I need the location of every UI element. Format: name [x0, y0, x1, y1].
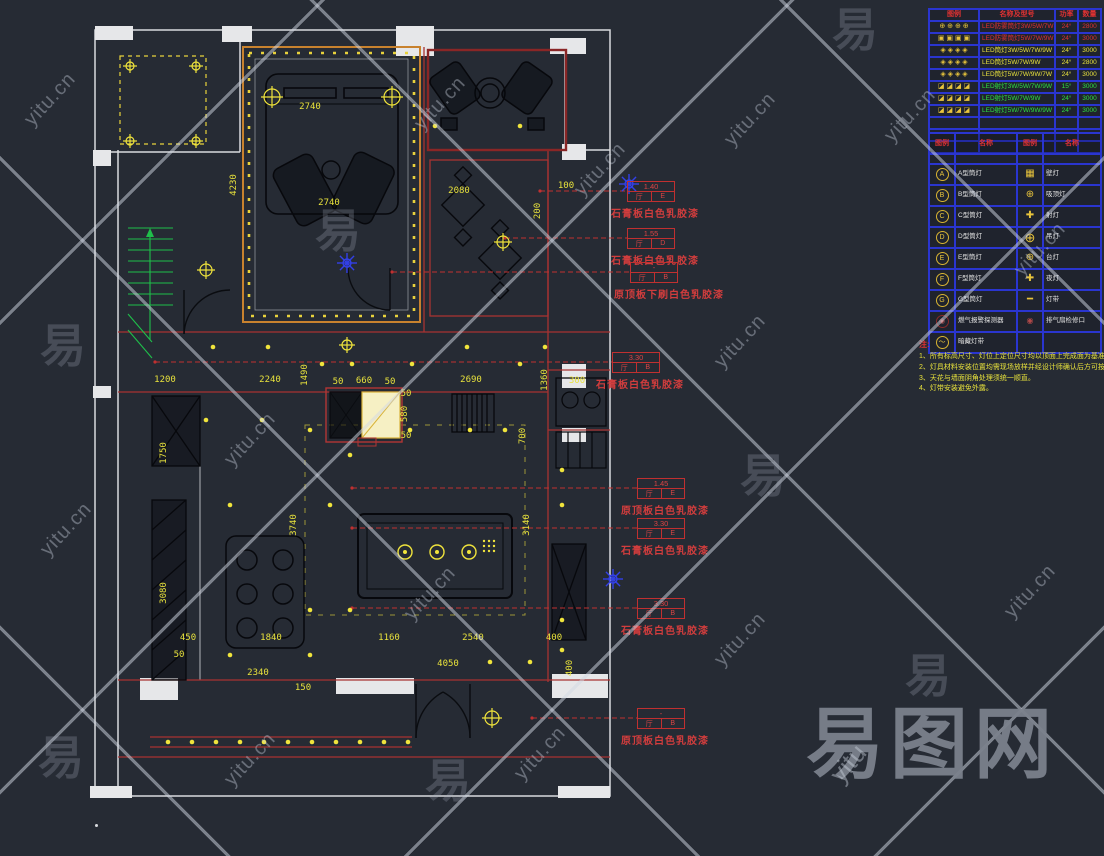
callout-finish-label: 石膏板白色乳胶漆 — [621, 622, 709, 637]
legend-row: ◈ ◈ ◈ ◈LED筒灯3W/5W/7W/9W24°3000 — [929, 45, 1101, 57]
symbol-name: C型筒灯 — [955, 206, 1017, 227]
legend-row: 图例名称图例名称 — [929, 133, 1101, 154]
legend-cell — [1055, 117, 1078, 129]
dot-light-icon — [488, 540, 490, 542]
dot-light-icon — [483, 540, 485, 542]
downlight-icon — [320, 362, 325, 367]
dot-light-icon — [488, 550, 490, 552]
ceiling-lamp-icon — [339, 337, 355, 353]
fixture-name: LED筒灯5W/7W/9W/7W — [979, 69, 1055, 81]
dim-label: 4230 — [229, 174, 239, 196]
downlight-icon — [350, 362, 355, 367]
dim-label: 50 — [333, 377, 344, 387]
downlight-icon — [358, 740, 363, 745]
cad-canvas: 2740423027402080100200120022401490506605… — [0, 0, 1104, 856]
lamp-symbols-icon: ◪ ◪ ◪ ◪ — [929, 105, 979, 117]
callout-tag: 1.45 厅 E — [637, 478, 685, 499]
wardrobe — [552, 544, 586, 640]
dim-label: 700 — [518, 428, 528, 444]
dim-label: 50 — [401, 389, 412, 399]
ceiling-lamp-icon — [123, 134, 137, 148]
dining-set — [226, 536, 304, 648]
legend-header: 图例 — [929, 133, 955, 154]
legend-row: G G型筒灯 ━ 灯带 — [929, 290, 1101, 311]
symbol-name: 燃气报警探测器 — [955, 311, 1017, 332]
downlight-icon — [560, 648, 565, 653]
legend-row: D D型筒灯 ⊕ 吊灯 — [929, 227, 1101, 248]
dim-label: 3080 — [159, 582, 169, 604]
downlight-icon — [543, 345, 548, 350]
callout-code: B — [662, 719, 685, 728]
dim-label: 1160 — [378, 633, 400, 643]
legend-cell — [1078, 117, 1101, 129]
callout-code: B — [662, 609, 685, 618]
downlight-icon — [266, 345, 271, 350]
fixture-name: LED射灯3W/5W/7W/9W — [979, 81, 1055, 93]
callout-height: 3.30 — [638, 519, 684, 529]
lamp-symbol-icon: ▦ — [1025, 169, 1034, 180]
stray-dot — [95, 824, 98, 827]
downlight-icon — [214, 740, 219, 745]
note-item: 3、天花与墙面阴角处理须统一顺直。 — [919, 374, 1104, 385]
lamp-symbols-icon: ◈ ◈ ◈ ◈ — [929, 45, 979, 57]
legend-row — [929, 154, 1101, 164]
symbol-legend-table: 图例名称图例名称 A A型筒灯 ▦ 壁灯 B B型筒灯 ⊕ 吸顶灯 C C型筒灯… — [928, 132, 1102, 354]
callout-height: 3.30 — [638, 599, 684, 609]
fixture-qty: 3000 — [1078, 93, 1101, 105]
lamp-symbol-icon: ✚ — [1026, 211, 1034, 222]
callout-finish-label: 原顶板白色乳胶漆 — [621, 502, 709, 517]
ceiling-lamp-icon — [381, 86, 403, 108]
downlight-type-icon: G — [936, 294, 949, 307]
finish-callout: 3.30 厅 B 石膏板白色乳胶漆 — [637, 598, 709, 637]
radiator-unit — [452, 394, 494, 432]
legend-header: 名称及型号 — [979, 9, 1055, 21]
fixture-qty: 3000 — [1078, 69, 1101, 81]
symbol-name: F型筒灯 — [955, 269, 1017, 290]
downlight-type-icon: B — [936, 189, 949, 202]
watermark-glyph: 易 — [832, 0, 878, 60]
fixture-name: LED射灯5W/7W/9W — [979, 93, 1055, 105]
dim-label: 2240 — [259, 375, 281, 385]
legend-cell — [979, 117, 1055, 129]
legend-row: ⊕ ⊕ ⊕ ⊕LED防雾筒灯3W/5W/7W24°2800 — [929, 21, 1101, 33]
downlight-icon — [310, 740, 315, 745]
symbol-name: 排气扇检修口 — [1043, 311, 1101, 332]
downlight-icon — [518, 124, 523, 129]
fixture-qty: 2800 — [1078, 57, 1101, 69]
downlight-icon — [348, 453, 353, 458]
downlight-icon — [410, 362, 415, 367]
downlight-type-icon: D — [936, 231, 949, 244]
dim-label: 50 — [174, 650, 185, 660]
dim-label: 50 — [385, 377, 396, 387]
callout-code: E — [652, 192, 675, 201]
downlight-type-icon: A — [936, 168, 949, 181]
fixture-qty: 3000 — [1078, 81, 1101, 93]
callout-tag: 3.30 厅 B — [637, 598, 685, 619]
downlight-icon — [190, 740, 195, 745]
downlight-icon — [308, 428, 313, 433]
downlight-icon — [166, 740, 171, 745]
dot-light-icon — [483, 545, 485, 547]
finish-callout: - 厅 B 原顶板白色乳胶漆 — [637, 708, 709, 747]
pendant-lamp-icon — [398, 545, 412, 559]
legend-row: A A型筒灯 ▦ 壁灯 — [929, 164, 1101, 185]
fixture-power: 24° — [1055, 33, 1078, 45]
callout-height: 1.55 — [628, 229, 674, 239]
dim-label: 2340 — [247, 668, 269, 678]
downlight-icon — [238, 740, 243, 745]
dim-label: 1200 — [154, 375, 176, 385]
dim-label: 1840 — [260, 633, 282, 643]
lamp-symbol-icon: ◉ — [1027, 317, 1034, 325]
callout-finish-label: 石膏板白色乳胶漆 — [611, 205, 699, 220]
lamp-symbols-icon: ◈ ◈ ◈ ◈ — [929, 69, 979, 81]
downlight-icon — [211, 345, 216, 350]
legend-row: F F型筒灯 ✚ 夜灯 — [929, 269, 1101, 290]
dim-label: 200 — [533, 203, 543, 219]
downlight-icon — [468, 428, 473, 433]
legend-row: ◈ ◈ ◈ ◈LED筒灯5W/7W/9W/7W24°3000 — [929, 69, 1101, 81]
callout-height: - — [631, 263, 677, 273]
callout-room: 厅 — [638, 719, 662, 728]
ceiling-lamp-icon — [189, 59, 203, 73]
legend-row: ◉ 燃气报警探测器 ◉ 排气扇检修口 — [929, 311, 1101, 332]
callout-room: 厅 — [613, 363, 637, 372]
downlight-icon — [503, 428, 508, 433]
symbol-name: 壁灯 — [1043, 164, 1101, 185]
dot-light-icon — [488, 545, 490, 547]
light-box — [326, 388, 402, 446]
callout-finish-label: 石膏板白色乳胶漆 — [621, 542, 709, 557]
legend-header: 图例 — [929, 9, 979, 21]
downlight-icon — [560, 618, 565, 623]
lamp-symbol-icon: ━ — [1027, 295, 1033, 306]
legend-row: ◈ ◈ ◈ ◈LED筒灯5W/7W/9W24°2800 — [929, 57, 1101, 69]
callout-code: E — [662, 489, 685, 498]
callout-room: 厅 — [631, 273, 655, 282]
legend-header: 图例 — [1017, 133, 1043, 154]
downlight-icon — [204, 418, 209, 423]
dot-light-icon — [493, 545, 495, 547]
downlight-icon — [334, 740, 339, 745]
symbol-name: 吸顶灯 — [1043, 185, 1101, 206]
dim-label: 2540 — [462, 633, 484, 643]
lamp-symbols-icon: ◪ ◪ ◪ ◪ — [929, 81, 979, 93]
symbol-name: B型筒灯 — [955, 185, 1017, 206]
ceiling-lamp-icon — [197, 261, 215, 279]
downlight-icon — [465, 345, 470, 350]
callout-tag: 3.30 厅 B — [612, 352, 660, 373]
legend-header: 功率 — [1055, 9, 1078, 21]
symbol-name: 夜灯 — [1043, 269, 1101, 290]
fixture-power: 15° — [1055, 81, 1078, 93]
legend-cell — [929, 117, 979, 129]
hall-light-band — [305, 425, 525, 615]
symbol-name: 灯带 — [1043, 290, 1101, 311]
fixture-power: 24° — [1055, 21, 1078, 33]
callout-finish-label: 原顶板白色乳胶漆 — [621, 732, 709, 747]
callout-room: 厅 — [628, 239, 652, 248]
doors — [184, 268, 470, 738]
dim-label: 1490 — [300, 364, 310, 386]
callout-tag: 1.55 厅 D — [627, 228, 675, 249]
downlight-icon — [308, 608, 313, 613]
finish-callout: - 厅 B 原顶板下刷白色乳胶漆 — [630, 262, 724, 301]
dim-label: 2690 — [460, 375, 482, 385]
downlight-icon — [348, 608, 353, 613]
notes: 注: 1、所有标高尺寸、灯位上定位尺寸均以顶面上完成面为基准。2、灯具材料安装位… — [919, 339, 1104, 395]
dim-label: 580 — [400, 406, 410, 422]
dim-label: 400 — [546, 633, 562, 643]
symbol-name: A型筒灯 — [955, 164, 1017, 185]
downlight-icon — [560, 468, 565, 473]
dim-label: 660 — [356, 376, 372, 386]
callout-finish-label: 石膏板白色乳胶漆 — [596, 376, 684, 391]
downlight-icon — [488, 660, 493, 665]
legend-row: ▣ ▣ ▣ ▣LED防雾筒灯5W/7W/9W24°3000 — [929, 33, 1101, 45]
dim-label: 1750 — [159, 442, 169, 464]
chandelier-icon — [603, 569, 623, 589]
dim-label: 2740 — [299, 102, 321, 112]
note-item: 1、所有标高尺寸、灯位上定位尺寸均以顶面上完成面为基准。 — [919, 352, 1104, 363]
callout-height: 1.45 — [638, 479, 684, 489]
finish-callout: 3.30 厅 B 石膏板白色乳胶漆 — [612, 352, 684, 391]
downlight-icon — [560, 503, 565, 508]
downlight-icon — [308, 653, 313, 658]
lamp-symbols-icon: ◈ ◈ ◈ ◈ — [929, 57, 979, 69]
watermark-glyph: 易 — [315, 195, 361, 261]
watermark-glyph: 易 — [40, 310, 86, 376]
fixture-power: 24° — [1055, 105, 1078, 117]
downlight-type-icon: C — [936, 210, 949, 223]
note-item: 2、灯具材料安装位置均需现场放样并经设计师确认后方可按图施工预留。 — [919, 363, 1104, 374]
legend-row — [929, 117, 1101, 129]
fixture-power: 24° — [1055, 69, 1078, 81]
finish-callout: 1.45 厅 E 原顶板白色乳胶漆 — [637, 478, 709, 517]
lamp-symbols-icon: ⊕ ⊕ ⊕ ⊕ — [929, 21, 979, 33]
downlight-icon — [228, 653, 233, 658]
fixture-name: LED防雾筒灯3W/5W/7W — [979, 21, 1055, 33]
callout-tag: - 厅 B — [630, 262, 678, 283]
legend-row: ◪ ◪ ◪ ◪LED射灯5W/7W/9W24°3000 — [929, 93, 1101, 105]
downlight-icon — [382, 740, 387, 745]
legend-row: 图例名称及型号功率数量 — [929, 9, 1101, 21]
dim-label: 1360 — [540, 369, 550, 391]
symbol-name: D型筒灯 — [955, 227, 1017, 248]
symbol-name: E型筒灯 — [955, 248, 1017, 269]
callout-room: 厅 — [638, 609, 662, 618]
game-tables — [423, 167, 539, 299]
fixture-name: LED射灯5W/7W/9W/9W — [979, 105, 1055, 117]
dot-light-icon — [483, 550, 485, 552]
ceiling-lamp-icon — [494, 233, 512, 251]
legend-header: 名称 — [955, 133, 1017, 154]
downlight-icon — [518, 362, 523, 367]
pendant-lamp-icon — [462, 545, 476, 559]
finish-callout: 3.30 厅 E 石膏板白色乳胶漆 — [637, 518, 709, 557]
symbol-name: G型筒灯 — [955, 290, 1017, 311]
dim-label: 400 — [565, 660, 575, 676]
downlight-icon — [528, 660, 533, 665]
downlight-icon — [228, 503, 233, 508]
callout-finish-label: 原顶板下刷白色乳胶漆 — [614, 286, 724, 301]
finish-callout: 1.40 厅 E 石膏板白色乳胶漆 — [627, 181, 699, 220]
fixture-name: LED防雾筒灯5W/7W/9W — [979, 33, 1055, 45]
legend-header: 名称 — [1043, 133, 1101, 154]
legend-row: ◪ ◪ ◪ ◪LED射灯3W/5W/7W/9W15°3000 — [929, 81, 1101, 93]
downlight-icon — [286, 740, 291, 745]
dim-label: 3140 — [522, 514, 532, 536]
callout-tag: 1.40 厅 E — [627, 181, 675, 202]
note-item: 4、灯带安装避免外露。 — [919, 384, 1104, 395]
fixture-name: LED筒灯3W/5W/7W/9W — [979, 45, 1055, 57]
legend-header: 数量 — [1078, 9, 1101, 21]
downlight-type-icon: ◉ — [936, 315, 949, 328]
fixture-qty: 3000 — [1078, 45, 1101, 57]
ceiling-lamp-icon — [189, 134, 203, 148]
downlight-type-icon: F — [936, 273, 949, 286]
callout-tag: 3.30 厅 E — [637, 518, 685, 539]
dim-label: 450 — [180, 633, 196, 643]
fixture-qty: 2800 — [1078, 21, 1101, 33]
dim-label: 3740 — [289, 514, 299, 536]
callout-height: 3.30 — [613, 353, 659, 363]
callout-room: 厅 — [638, 529, 662, 538]
fixture-power: 24° — [1055, 57, 1078, 69]
ceiling-lamp-icon — [123, 59, 137, 73]
callout-tag: - 厅 B — [637, 708, 685, 729]
legend-row: B B型筒灯 ⊕ 吸顶灯 — [929, 185, 1101, 206]
fixture-name: LED筒灯5W/7W/9W — [979, 57, 1055, 69]
callout-code: B — [655, 273, 678, 282]
callout-height: 1.40 — [628, 182, 674, 192]
dot-light-icon — [493, 550, 495, 552]
callout-room: 厅 — [638, 489, 662, 498]
lamp-symbols-icon: ▣ ▣ ▣ ▣ — [929, 33, 979, 45]
downlight-icon — [328, 503, 333, 508]
downlight-icon — [406, 740, 411, 745]
pendant-lamp-icon — [430, 545, 444, 559]
dim-label: 50 — [401, 431, 412, 441]
watermark-glyph: 易 — [740, 440, 786, 506]
fixture-qty: 3000 — [1078, 105, 1101, 117]
callout-code: E — [662, 529, 685, 538]
notes-title: 注: — [919, 340, 930, 349]
dim-label: 150 — [295, 683, 311, 693]
watermark-glyph: 易 — [38, 722, 84, 788]
callout-code: B — [637, 363, 660, 372]
stairs — [128, 228, 173, 358]
legend-row: ◪ ◪ ◪ ◪LED射灯5W/7W/9W/9W24°3000 — [929, 105, 1101, 117]
watermark-glyph: 易 — [425, 745, 471, 811]
callout-height: - — [638, 709, 684, 719]
legend-row: C C型筒灯 ✚ 射灯 — [929, 206, 1101, 227]
downlight-type-icon: E — [936, 252, 949, 265]
callout-room: 厅 — [628, 192, 652, 201]
lamp-symbol-icon: ⊕ — [1026, 190, 1034, 201]
callout-code: D — [652, 239, 675, 248]
ceiling-lamp-icon — [261, 86, 283, 108]
dim-label: 2080 — [448, 186, 470, 196]
dim-label: 4050 — [437, 659, 459, 669]
dot-light-icon — [493, 540, 495, 542]
dim-label: 300 — [569, 376, 585, 386]
fixture-power: 24° — [1055, 93, 1078, 105]
fixture-qty: 3000 — [1078, 33, 1101, 45]
fixture-power: 24° — [1055, 45, 1078, 57]
ceiling-lamp-icon — [482, 708, 502, 728]
